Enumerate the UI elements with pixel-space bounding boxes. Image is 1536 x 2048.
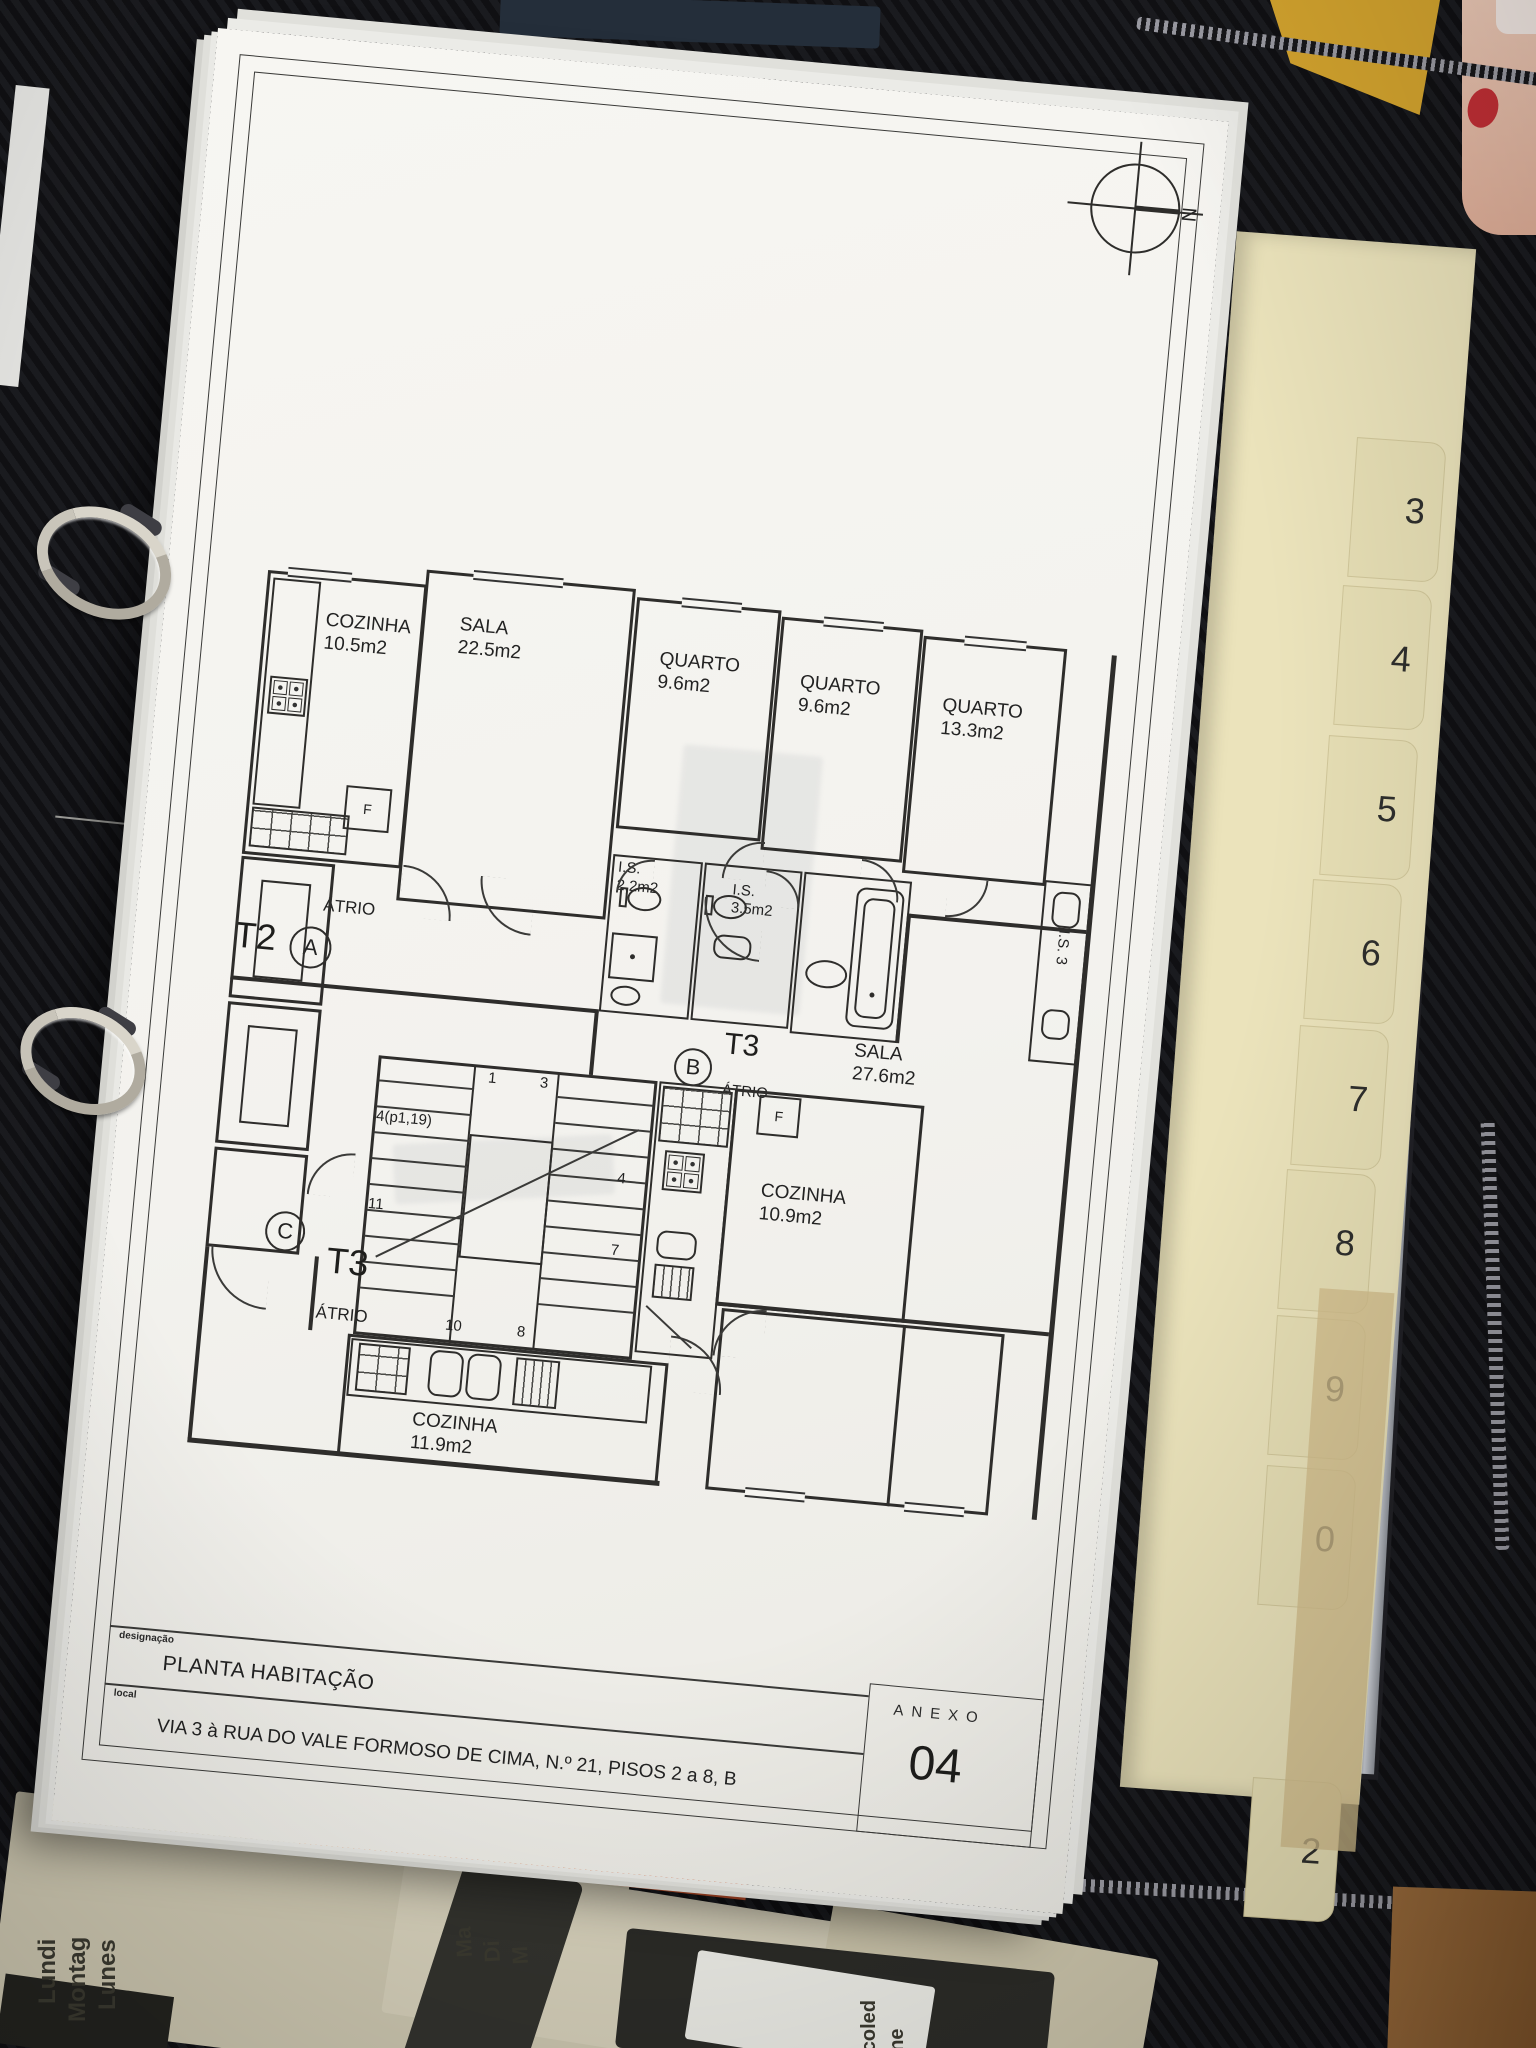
door-arc <box>206 1245 271 1310</box>
tab-number: 5 <box>1375 788 1398 831</box>
planner-word-rcoled: rcoled <box>858 2000 881 2048</box>
door-arc <box>945 877 989 921</box>
stair-core <box>458 1134 553 1265</box>
unit-b-letter: B <box>672 1047 713 1088</box>
f-box-a: F <box>343 785 393 833</box>
planner-word-ma: Ma <box>450 1926 478 1958</box>
planner-word-montag: Montag <box>64 1937 92 2022</box>
room-label-quarto-3: QUARTO 13.3m2 <box>939 694 1024 748</box>
unit-b-type: T3 <box>723 1027 761 1064</box>
unit-letter: B <box>685 1054 702 1081</box>
room-label-sala-a: SALA 22.5m2 <box>457 613 524 665</box>
counter-hatch <box>355 1343 411 1396</box>
room-label-is-side: I.S. 3 <box>1051 929 1072 966</box>
stair-number: 3 <box>539 1074 549 1093</box>
binder-tab-5: 5 <box>1319 735 1419 881</box>
anexo-number: 04 <box>906 1735 964 1795</box>
room-label-cozinha-a: COZINHA 10.5m2 <box>323 609 412 663</box>
f-label: F <box>774 1108 784 1125</box>
room-label-quarto-2: QUARTO 9.6m2 <box>797 671 882 725</box>
loose-paper-sliver <box>0 85 50 387</box>
atrio-c-label: ÁTRIO <box>315 1303 369 1328</box>
stair-number: 11 <box>367 1195 384 1215</box>
room-area: 22.5m2 <box>457 637 522 664</box>
stove-icon <box>267 676 308 717</box>
white-corner-object <box>1496 0 1536 34</box>
planner-word-lundi: Lundi <box>34 1939 62 2004</box>
tab-number: 7 <box>1346 1078 1369 1121</box>
room-label-cozinha-b: COZINHA 10.9m2 <box>758 1179 847 1233</box>
lift-2-car <box>239 1025 298 1127</box>
zipper-right <box>1481 1120 1510 1550</box>
room-label-quarto-1: QUARTO 9.6m2 <box>656 648 741 702</box>
sink-fixture <box>655 1230 697 1262</box>
binder-tab-4: 4 <box>1333 585 1433 731</box>
binder-tab-6: 6 <box>1303 879 1403 1025</box>
stair-number: 8 <box>516 1323 526 1342</box>
wall-corridor-a-div <box>589 1011 599 1075</box>
stair-number: 4 <box>617 1170 627 1189</box>
tab-number: 8 <box>1333 1222 1356 1265</box>
tab-number: 4 <box>1389 638 1412 681</box>
sink-fixture <box>464 1353 502 1402</box>
photo-scene: Lundi Montag Lunes Ma Di M di day rcoled… <box>0 0 1536 2048</box>
wood-desk-corner <box>1387 1887 1536 2048</box>
room-label-sala-b: SALA 27.6m2 <box>851 1039 918 1091</box>
drawing-sheet: N F COZ <box>52 28 1229 1914</box>
room-area: 10.9m2 <box>758 1203 823 1230</box>
room-name: SALA <box>459 614 509 639</box>
toilet-fixture <box>1051 891 1082 929</box>
counter-hatch <box>658 1086 733 1148</box>
north-label: N <box>1175 206 1201 223</box>
stair-number: 7 <box>610 1242 620 1261</box>
door-arc <box>307 1149 356 1198</box>
unit-letter: C <box>276 1218 294 1245</box>
unit-c-type: T3 <box>325 1239 371 1285</box>
stair-number: 10 <box>444 1317 462 1337</box>
room-name: SALA <box>853 1040 903 1065</box>
room-area: 3 <box>1052 956 1070 966</box>
room-area: 13.3m2 <box>939 718 1004 745</box>
f-box-b: F <box>756 1095 802 1139</box>
dish-rack <box>512 1357 560 1409</box>
sink-fixture <box>427 1349 465 1398</box>
wall-quarto-1 <box>616 597 782 841</box>
room-name: I.S. <box>1054 929 1073 953</box>
room-area: 27.6m2 <box>851 1063 916 1090</box>
f-label: F <box>362 801 372 818</box>
wall-quarto-3 <box>902 636 1067 886</box>
wall-quarto-2 <box>760 617 923 863</box>
tab-number: 6 <box>1359 932 1382 975</box>
room-label-cozinha-c: COZINHA 11.9m2 <box>409 1408 498 1462</box>
room-area: 9.6m2 <box>797 695 852 721</box>
lift-1-car <box>252 880 311 982</box>
planner-word-m: M <box>507 1945 534 1965</box>
room-area: 9.6m2 <box>656 672 711 698</box>
local-label: local <box>113 1688 137 1701</box>
blue-folder-edge <box>499 0 880 49</box>
stove-icon <box>662 1150 706 1194</box>
binder-tab-3: 3 <box>1347 437 1447 583</box>
room-area: 10.5m2 <box>323 633 388 660</box>
planner-word-lunes: Lunes <box>94 1939 122 2010</box>
planner-word-dne: dne <box>886 2028 909 2048</box>
sink-fixture <box>1040 1008 1071 1040</box>
binder-tab-7: 7 <box>1290 1025 1390 1171</box>
floor-plan: F COZINHA 10.5m2 SALA 22.5m2 QUARTO 9.6m… <box>182 555 1136 1581</box>
tab-number: 3 <box>1403 490 1426 533</box>
dish-rack <box>652 1264 695 1302</box>
planner-word-di: Di <box>479 1940 506 1963</box>
room-area: 11.9m2 <box>409 1432 473 1459</box>
stair-number: 1 <box>487 1069 497 1088</box>
